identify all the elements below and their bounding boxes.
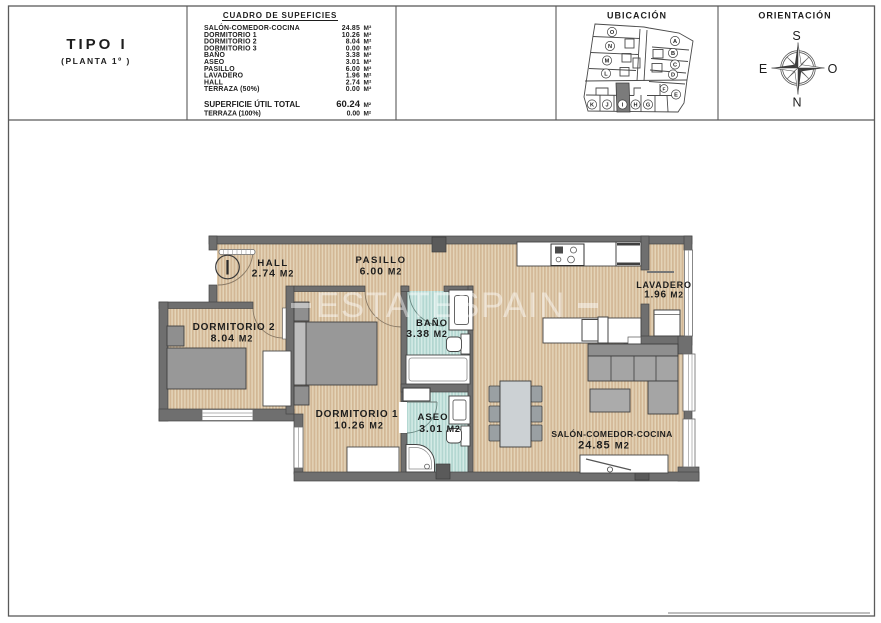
svg-text:TERRAZA (100%): TERRAZA (100%) <box>204 111 261 118</box>
svg-text:TIPO I: TIPO I <box>66 36 127 53</box>
svg-text:60.24: 60.24 <box>336 99 360 110</box>
svg-text:N: N <box>608 44 612 50</box>
svg-text:C: C <box>673 63 677 69</box>
svg-text:1.96 M2: 1.96 M2 <box>644 290 684 301</box>
svg-text:S: S <box>792 29 800 43</box>
svg-text:M: M <box>605 59 610 65</box>
svg-text:2.74 M2: 2.74 M2 <box>252 268 295 280</box>
svg-text:J: J <box>605 103 608 109</box>
svg-text:H: H <box>633 103 637 109</box>
svg-text:UBICACIÓN: UBICACIÓN <box>607 10 667 21</box>
svg-text:DORMITORIO 1: DORMITORIO 1 <box>316 409 399 420</box>
svg-text:ORIENTACIÓN: ORIENTACIÓN <box>758 10 831 21</box>
svg-text:E: E <box>759 62 767 76</box>
svg-text:6.00 M2: 6.00 M2 <box>360 266 403 278</box>
svg-text:O: O <box>610 30 615 36</box>
svg-text:G: G <box>646 103 650 109</box>
svg-text:0.00: 0.00 <box>346 86 360 93</box>
svg-text:O: O <box>828 62 838 76</box>
svg-text:M²: M² <box>364 111 372 118</box>
svg-text:8.04 M2: 8.04 M2 <box>211 333 254 345</box>
svg-text:0.00: 0.00 <box>347 111 361 118</box>
svg-text:BAÑO: BAÑO <box>204 50 226 59</box>
svg-text:SUPERFICIE ÚTIL TOTAL: SUPERFICIE ÚTIL TOTAL <box>204 100 300 109</box>
svg-text:TERRAZA (50%): TERRAZA (50%) <box>204 86 260 93</box>
svg-text:3.01 M2: 3.01 M2 <box>419 423 460 435</box>
svg-text:CUADRO DE SUPEFICIES: CUADRO DE SUPEFICIES <box>223 11 337 20</box>
svg-text:D: D <box>671 73 675 79</box>
svg-text:ASEO: ASEO <box>418 412 449 423</box>
svg-text:PASILLO: PASILLO <box>356 255 407 266</box>
svg-text:B: B <box>671 51 675 57</box>
svg-text:M²: M² <box>364 86 373 93</box>
svg-text:ESTATESPAIN: ESTATESPAIN <box>316 286 566 325</box>
svg-text:24.85 M2: 24.85 M2 <box>578 440 630 452</box>
svg-text:F: F <box>663 87 666 93</box>
svg-text:E: E <box>674 93 678 99</box>
svg-text:K: K <box>590 103 594 109</box>
svg-text:(PLANTA 1º ): (PLANTA 1º ) <box>61 56 131 66</box>
svg-text:L: L <box>604 72 608 78</box>
svg-text:LAVADERO: LAVADERO <box>636 280 692 290</box>
svg-text:10.26 M2: 10.26 M2 <box>334 420 384 432</box>
svg-text:SALÓN-COMEDOR-COCINA: SALÓN-COMEDOR-COCINA <box>551 428 672 439</box>
svg-text:DORMITORIO 2: DORMITORIO 2 <box>193 322 276 333</box>
svg-text:A: A <box>673 39 677 45</box>
svg-text:M²: M² <box>364 102 372 109</box>
svg-text:3.38 M2: 3.38 M2 <box>406 328 447 340</box>
svg-text:SALÓN-COMEDOR-COCINA: SALÓN-COMEDOR-COCINA <box>204 23 300 32</box>
svg-text:N: N <box>792 96 801 110</box>
